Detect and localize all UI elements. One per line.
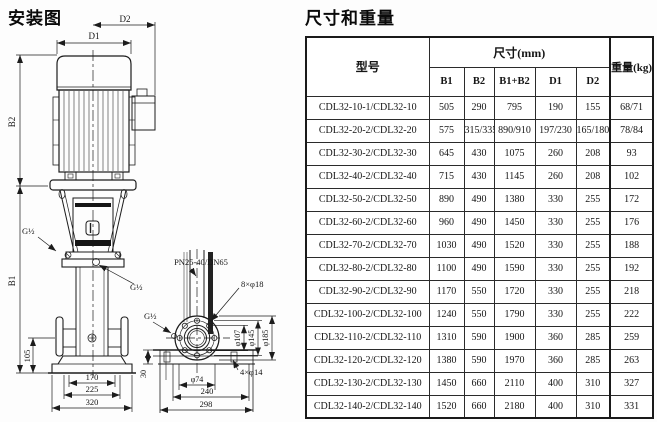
table-row: CDL32-60-2/CDL32-609604901450330255176 xyxy=(306,211,653,234)
size-cell: 197/230 xyxy=(535,119,576,142)
motor-terminal-box xyxy=(132,89,155,130)
dim-label-d1: D1 xyxy=(89,31,100,41)
size-cell: 285 xyxy=(576,326,610,349)
flange-face xyxy=(172,316,220,360)
dim-label-170: 170 xyxy=(86,372,99,382)
weight-cell: 176 xyxy=(610,211,653,234)
model-cell: CDL32-10-1/CDL32-10 xyxy=(306,96,429,119)
table-row: CDL32-120-2/CDL32-1201380590197036028526… xyxy=(306,349,653,372)
size-cell: 1310 xyxy=(429,326,464,349)
weight-cell: 102 xyxy=(610,165,653,188)
size-cell: 575 xyxy=(429,119,464,142)
size-cell: 1450 xyxy=(429,372,464,395)
model-cell: CDL32-80-2/CDL32-80 xyxy=(306,257,429,280)
table-row: CDL32-40-2/CDL32-407154301145260208102 xyxy=(306,165,653,188)
size-cell: 255 xyxy=(576,280,610,303)
table-row: CDL32-80-2/CDL32-8011004901590330255192 xyxy=(306,257,653,280)
size-cell: 1970 xyxy=(494,349,535,372)
size-cell: 890 xyxy=(429,188,464,211)
table-row: CDL32-50-2/CDL32-508904901380330255172 xyxy=(306,188,653,211)
model-cell: CDL32-110-2/CDL32-110 xyxy=(306,326,429,349)
size-cell: 208 xyxy=(576,142,610,165)
size-cell: 155 xyxy=(576,96,610,119)
size-cell: 890/910 xyxy=(494,119,535,142)
dim-label-b2: B2 xyxy=(7,117,17,128)
front-view-dimensions: D1 D2 B2 B1 105 170 xyxy=(7,14,155,412)
dim-label-240: 240 xyxy=(201,386,214,396)
size-cell: 1380 xyxy=(494,188,535,211)
size-cell: 330 xyxy=(535,234,576,257)
dim-label-225: 225 xyxy=(86,384,99,394)
size-cell: 1720 xyxy=(494,280,535,303)
weight-cell: 259 xyxy=(610,326,653,349)
dim-label-dia74: φ74 xyxy=(191,375,204,384)
flange-base-view: PN25-40/DN65 8×φ18 G½ 4×φ14 φ107 φ145 xyxy=(139,249,276,413)
size-cell: 1790 xyxy=(494,303,535,326)
dim-label-298: 298 xyxy=(200,399,213,409)
size-cell: 795 xyxy=(494,96,535,119)
header-b1: B1 xyxy=(429,67,464,96)
model-cell: CDL32-90-2/CDL32-90 xyxy=(306,280,429,303)
dimensions-table-body: CDL32-10-1/CDL32-1050529079519015568/71C… xyxy=(306,96,653,418)
size-cell: 310 xyxy=(576,395,610,418)
size-cell: 430 xyxy=(464,142,494,165)
size-cell: 1145 xyxy=(494,165,535,188)
model-cell: CDL32-140-2/CDL32-140 xyxy=(306,395,429,418)
table-row: CDL32-10-1/CDL32-1050529079519015568/71 xyxy=(306,96,653,119)
weight-cell: 78/84 xyxy=(610,119,653,142)
size-cell: 645 xyxy=(429,142,464,165)
size-cell: 330 xyxy=(535,211,576,234)
size-cell: 1240 xyxy=(429,303,464,326)
header-b2: B2 xyxy=(464,67,494,96)
table-row: CDL32-90-2/CDL32-9011705501720330255218 xyxy=(306,280,653,303)
port-label-g-half-left: G½ xyxy=(22,226,35,236)
weight-cell: 192 xyxy=(610,257,653,280)
size-cell: 490 xyxy=(464,234,494,257)
dim-label-320: 320 xyxy=(86,397,99,407)
table-header: 型号 尺寸(mm) 重量(kg) B1 B2 B1+B2 D1 D2 xyxy=(306,37,653,96)
size-cell: 1075 xyxy=(494,142,535,165)
size-cell: 255 xyxy=(576,303,610,326)
weight-cell: 222 xyxy=(610,303,653,326)
weight-cell: 327 xyxy=(610,372,653,395)
coupling-clamp xyxy=(86,221,99,235)
base-dimensions: 30 φ74 240 298 xyxy=(139,350,253,410)
size-cell: 505 xyxy=(429,96,464,119)
size-cell: 1520 xyxy=(494,234,535,257)
size-cell: 255 xyxy=(576,257,610,280)
table-row: CDL32-70-2/CDL32-7010304901520330255188 xyxy=(306,234,653,257)
model-cell: CDL32-50-2/CDL32-50 xyxy=(306,188,429,211)
dim-label-dia185: φ185 xyxy=(261,330,270,347)
weight-cell: 188 xyxy=(610,234,653,257)
pump-installation-drawing: D1 D2 B2 B1 105 170 xyxy=(0,0,310,422)
size-cell: 310 xyxy=(576,372,610,395)
size-cell: 1450 xyxy=(494,211,535,234)
size-cell: 1380 xyxy=(429,349,464,372)
dim-label-d2: D2 xyxy=(120,14,131,24)
motor-fan-cover xyxy=(57,56,131,90)
base-bolts-label: 4×φ14 xyxy=(240,367,263,377)
header-weight: 重量(kg) xyxy=(610,37,653,96)
size-cell: 255 xyxy=(576,234,610,257)
port-label-g-half-right: G½ xyxy=(130,282,143,292)
dimensions-weight-title: 尺寸和重量 xyxy=(305,4,395,29)
pump-base xyxy=(48,356,136,373)
model-cell: CDL32-20-2/CDL32-20 xyxy=(306,119,429,142)
model-cell: CDL32-60-2/CDL32-60 xyxy=(306,211,429,234)
model-cell: CDL32-100-2/CDL32-100 xyxy=(306,303,429,326)
weight-cell: 218 xyxy=(610,280,653,303)
size-cell: 2180 xyxy=(494,395,535,418)
size-cell: 165/180 xyxy=(576,119,610,142)
size-cell: 260 xyxy=(535,165,576,188)
size-cell: 360 xyxy=(535,349,576,372)
dim-label-30: 30 xyxy=(139,370,148,378)
motor-body xyxy=(53,90,135,172)
size-cell: 1520 xyxy=(429,395,464,418)
datasheet-page: 安装图 尺寸和重量 xyxy=(0,0,657,422)
size-cell: 1030 xyxy=(429,234,464,257)
model-cell: CDL32-70-2/CDL32-70 xyxy=(306,234,429,257)
size-cell: 255 xyxy=(576,211,610,234)
size-cell: 590 xyxy=(464,326,494,349)
size-cell: 590 xyxy=(464,349,494,372)
port-label-g-half-flange: G½ xyxy=(144,311,157,321)
table-row: CDL32-100-2/CDL32-1001240550179033025522… xyxy=(306,303,653,326)
size-cell: 208 xyxy=(576,165,610,188)
size-cell: 490 xyxy=(464,211,494,234)
header-b1b2: B1+B2 xyxy=(494,67,535,96)
model-cell: CDL32-30-2/CDL32-30 xyxy=(306,142,429,165)
size-cell: 315/335 xyxy=(464,119,494,142)
model-cell: CDL32-130-2/CDL32-130 xyxy=(306,372,429,395)
weight-cell: 93 xyxy=(610,142,653,165)
size-cell: 400 xyxy=(535,372,576,395)
size-cell: 550 xyxy=(464,303,494,326)
header-size-group: 尺寸(mm) xyxy=(429,37,610,67)
dimensions-weight-table: 型号 尺寸(mm) 重量(kg) B1 B2 B1+B2 D1 D2 CDL32… xyxy=(305,36,654,419)
dim-label-dia107: φ107 xyxy=(233,330,242,347)
size-cell: 1100 xyxy=(429,257,464,280)
pump-front-view: D1 D2 B2 B1 105 170 xyxy=(7,14,155,412)
flange-bolts-label: 8×φ18 xyxy=(241,279,263,289)
size-cell: 2110 xyxy=(494,372,535,395)
size-cell: 400 xyxy=(535,395,576,418)
size-cell: 1590 xyxy=(494,257,535,280)
size-cell: 490 xyxy=(464,257,494,280)
size-cell: 190 xyxy=(535,96,576,119)
size-cell: 330 xyxy=(535,280,576,303)
size-cell: 330 xyxy=(535,257,576,280)
model-cell: CDL32-120-2/CDL32-120 xyxy=(306,349,429,372)
pump-column xyxy=(76,267,108,356)
size-cell: 260 xyxy=(535,142,576,165)
weight-cell: 68/71 xyxy=(610,96,653,119)
header-model: 型号 xyxy=(306,37,429,96)
table-row: CDL32-30-2/CDL32-30645430107526020893 xyxy=(306,142,653,165)
header-d2: D2 xyxy=(576,67,610,96)
size-cell: 660 xyxy=(464,395,494,418)
size-cell: 660 xyxy=(464,372,494,395)
size-cell: 715 xyxy=(429,165,464,188)
weight-cell: 263 xyxy=(610,349,653,372)
size-cell: 430 xyxy=(464,165,494,188)
size-cell: 290 xyxy=(464,96,494,119)
table-row: CDL32-140-2/CDL32-1401520660218040031033… xyxy=(306,395,653,418)
table-row: CDL32-130-2/CDL32-1301450660211040031032… xyxy=(306,372,653,395)
size-cell: 1170 xyxy=(429,280,464,303)
size-cell: 960 xyxy=(429,211,464,234)
size-cell: 1900 xyxy=(494,326,535,349)
size-cell: 550 xyxy=(464,280,494,303)
size-cell: 360 xyxy=(535,326,576,349)
size-cell: 330 xyxy=(535,188,576,211)
size-cell: 255 xyxy=(576,188,610,211)
table-row: CDL32-110-2/CDL32-1101310590190036028525… xyxy=(306,326,653,349)
size-cell: 330 xyxy=(535,303,576,326)
dim-label-dia145: φ145 xyxy=(247,330,256,347)
size-cell: 490 xyxy=(464,188,494,211)
dim-label-b1: B1 xyxy=(7,276,17,287)
flange-rating-label: PN25-40/DN65 xyxy=(174,257,228,267)
weight-cell: 172 xyxy=(610,188,653,211)
model-cell: CDL32-40-2/CDL32-40 xyxy=(306,165,429,188)
dim-label-105: 105 xyxy=(22,350,32,363)
header-d1: D1 xyxy=(535,67,576,96)
weight-cell: 331 xyxy=(610,395,653,418)
table-row: CDL32-20-2/CDL32-20575315/335890/910197/… xyxy=(306,119,653,142)
size-cell: 285 xyxy=(576,349,610,372)
